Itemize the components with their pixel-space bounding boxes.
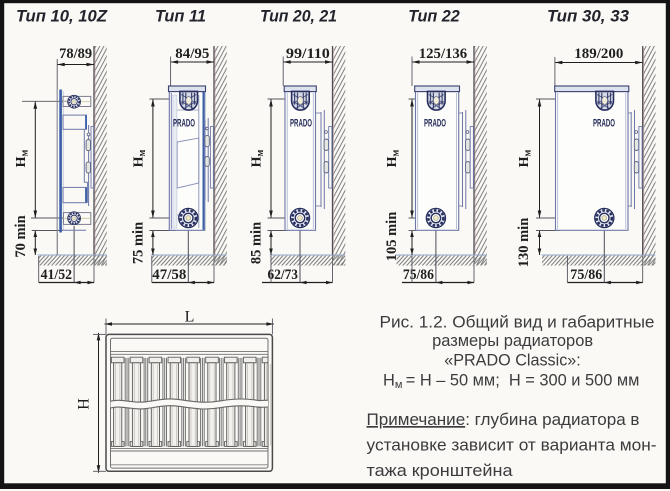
- svg-text:99/110: 99/110: [286, 46, 330, 62]
- svg-text:62/73: 62/73: [268, 267, 299, 283]
- svg-text:PRADO: PRADO: [593, 118, 615, 130]
- svg-text:Рис. 1.2. Общий вид и габаритн: Рис. 1.2. Общий вид и габаритные: [380, 313, 655, 332]
- svg-text:189/200: 189/200: [574, 46, 623, 62]
- svg-text:PRADO: PRADO: [424, 118, 446, 130]
- svg-text:75 min: 75 min: [130, 222, 146, 264]
- svg-text:Тип 30, 33: Тип 30, 33: [547, 7, 630, 26]
- svg-text:70 min: 70 min: [13, 215, 29, 257]
- svg-text:84/95: 84/95: [175, 46, 209, 62]
- svg-text:78/89: 78/89: [59, 46, 92, 62]
- svg-text:тажа кронштейна: тажа кронштейна: [367, 461, 514, 480]
- svg-text:Нм = Н – 50 мм; Н = 300 и 500: Нм = Н – 50 мм; Н = 300 и 500 мм: [383, 372, 639, 392]
- svg-text:105 min: 105 min: [384, 212, 400, 262]
- svg-text:125/136: 125/136: [419, 46, 467, 62]
- svg-text:75/86: 75/86: [570, 267, 602, 283]
- svg-text:Тип 10, 10Z: Тип 10, 10Z: [16, 7, 108, 26]
- svg-text:PRADO: PRADO: [290, 118, 312, 130]
- svg-text:Тип 11: Тип 11: [155, 7, 206, 26]
- svg-text:Примечание: глубина радиатора: Примечание: глубина радиатора в: [367, 410, 640, 429]
- svg-text:PRADO: PRADO: [173, 118, 195, 130]
- svg-text:41/52: 41/52: [41, 267, 73, 283]
- svg-text:H: H: [76, 398, 93, 410]
- svg-text:«PRADO Classic»:: «PRADO Classic»:: [444, 351, 581, 370]
- svg-text:75/86: 75/86: [403, 267, 434, 283]
- svg-text:установке зависит от варианта: установке зависит от варианта мон-: [367, 436, 657, 455]
- svg-text:47/58: 47/58: [152, 267, 186, 283]
- svg-text:размеры радиаторов: размеры радиаторов: [432, 331, 593, 350]
- svg-text:L: L: [185, 309, 195, 326]
- svg-text:130 min: 130 min: [516, 218, 532, 268]
- svg-text:Тип 22: Тип 22: [408, 7, 460, 26]
- svg-text:85 min: 85 min: [249, 222, 265, 264]
- svg-text:Тип 20, 21: Тип 20, 21: [260, 7, 337, 26]
